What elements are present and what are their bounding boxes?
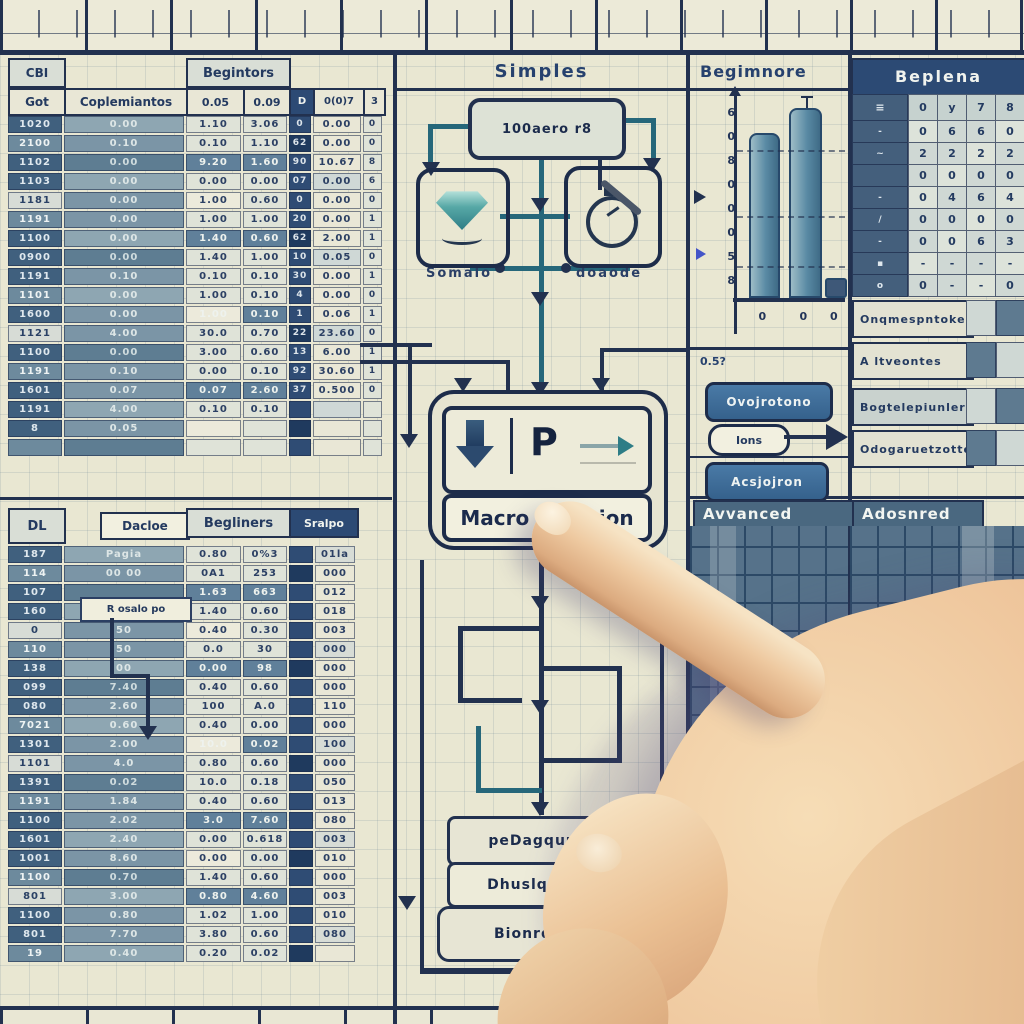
cell[interactable]: 2 <box>937 142 967 165</box>
cell[interactable]: 2.02 <box>64 812 184 829</box>
cell[interactable]: 1.40 <box>186 603 241 620</box>
cell[interactable]: 1 <box>363 306 382 323</box>
cell[interactable]: 1100 <box>8 812 62 829</box>
cell[interactable]: 1191 <box>8 268 62 285</box>
cell[interactable]: 1020 <box>8 116 62 133</box>
cell[interactable] <box>289 420 311 437</box>
mini-header-cell[interactable]: 7 <box>966 94 996 121</box>
table-a-value-header[interactable]: 0.09 <box>243 88 291 116</box>
cell[interactable]: 0 <box>363 382 382 399</box>
cell[interactable]: 23.60 <box>313 325 361 342</box>
mini-header-cell[interactable]: 8 <box>995 94 1024 121</box>
cell[interactable]: 1601 <box>8 831 62 848</box>
mini-header-cell[interactable]: 0 <box>908 94 938 121</box>
cell[interactable] <box>966 430 996 466</box>
cell[interactable]: 7.40 <box>64 679 184 696</box>
cell[interactable]: 98 <box>243 660 287 677</box>
cell[interactable]: 1100 <box>8 907 62 924</box>
cell[interactable]: 4.00 <box>64 401 184 418</box>
cell[interactable]: 0.40 <box>186 622 241 639</box>
cell[interactable]: 1101 <box>8 287 62 304</box>
cell[interactable] <box>289 755 313 772</box>
cell[interactable]: 0.30 <box>243 622 287 639</box>
cell[interactable]: 0.618 <box>243 831 287 848</box>
cell[interactable]: 0.00 <box>186 363 241 380</box>
cell[interactable]: 138 <box>8 660 62 677</box>
cell[interactable]: 1301 <box>8 736 62 753</box>
cell[interactable]: 160 <box>8 603 62 620</box>
cell[interactable]: 000 <box>315 660 355 677</box>
cell[interactable] <box>289 439 311 456</box>
cell[interactable]: 0.00 <box>64 306 184 323</box>
cell[interactable]: 0.40 <box>186 717 241 734</box>
cell[interactable]: 0 <box>966 208 996 231</box>
cell[interactable] <box>289 869 313 886</box>
cell[interactable]: - <box>937 274 967 297</box>
mini-table-corner[interactable]: ≡ <box>852 94 908 121</box>
mini-header-cell[interactable]: y <box>937 94 967 121</box>
cell[interactable] <box>966 342 996 378</box>
cell[interactable]: 1.00 <box>186 306 241 323</box>
cell[interactable]: 0.05 <box>313 249 361 266</box>
cell[interactable]: 0 <box>363 116 382 133</box>
cell[interactable]: 0.00 <box>243 173 287 190</box>
cell[interactable]: 8.60 <box>64 850 184 867</box>
cell[interactable]: 2.60 <box>243 382 287 399</box>
cell[interactable]: 013 <box>315 793 355 810</box>
cell[interactable]: 000 <box>315 869 355 886</box>
cell[interactable]: 4 <box>995 186 1024 209</box>
cell[interactable]: 0.00 <box>313 211 361 228</box>
cell[interactable]: 801 <box>8 888 62 905</box>
cell[interactable] <box>289 888 313 905</box>
cell[interactable]: 62 <box>289 135 311 152</box>
cell[interactable]: 010 <box>315 907 355 924</box>
cell[interactable]: 0900 <box>8 249 62 266</box>
cell[interactable]: 1 <box>363 268 382 285</box>
cell[interactable]: 3.00 <box>186 344 241 361</box>
cell[interactable]: - <box>995 252 1024 275</box>
cell[interactable] <box>996 388 1024 424</box>
cell[interactable]: 0 <box>908 164 938 187</box>
cell[interactable]: 1.00 <box>243 249 287 266</box>
cell[interactable]: 0.07 <box>186 382 241 399</box>
cell[interactable]: 8 <box>363 154 382 171</box>
table-b-title[interactable]: DL <box>8 508 66 544</box>
cell[interactable]: 37 <box>289 382 311 399</box>
cell[interactable] <box>289 926 313 943</box>
cell[interactable]: 1103 <box>8 173 62 190</box>
cell[interactable]: 0.18 <box>243 774 287 791</box>
advanced-header-left[interactable]: Avvanced <box>693 500 857 528</box>
cell[interactable] <box>289 401 311 418</box>
cell[interactable]: 0.07 <box>64 382 184 399</box>
cell[interactable]: 0 <box>908 120 938 143</box>
cell[interactable]: 4.00 <box>64 325 184 342</box>
cell[interactable]: 00 00 <box>64 565 184 582</box>
cell[interactable]: 7.60 <box>243 812 287 829</box>
cell[interactable]: 0.60 <box>243 603 287 620</box>
cell[interactable] <box>996 430 1024 466</box>
cell[interactable]: 0.00 <box>64 249 184 266</box>
cell[interactable] <box>289 831 313 848</box>
cell[interactable]: 2 <box>966 142 996 165</box>
cell[interactable]: 1.02 <box>186 907 241 924</box>
macro-icon-box[interactable]: P <box>442 406 652 494</box>
cell[interactable] <box>313 401 361 418</box>
cell[interactable] <box>289 812 313 829</box>
cell[interactable]: 0 <box>995 120 1024 143</box>
cell[interactable]: 0.80 <box>64 907 184 924</box>
cell[interactable]: 0 <box>937 208 967 231</box>
cell[interactable] <box>289 945 313 962</box>
cell[interactable] <box>64 439 184 456</box>
cell[interactable]: 0.10 <box>243 306 287 323</box>
cell[interactable]: 000 <box>315 755 355 772</box>
cell[interactable] <box>313 420 361 437</box>
cell[interactable] <box>289 717 313 734</box>
button-primary[interactable]: Ovojrotono <box>705 382 833 422</box>
cell[interactable]: 1.00 <box>243 907 287 924</box>
cell[interactable]: 0.00 <box>313 268 361 285</box>
cell[interactable]: 20 <box>289 211 311 228</box>
flow-icon-box-left[interactable] <box>416 168 510 268</box>
cell[interactable]: 0.60 <box>64 717 184 734</box>
cell[interactable] <box>315 945 355 962</box>
cell[interactable]: 1601 <box>8 382 62 399</box>
cell[interactable] <box>363 401 382 418</box>
cell[interactable]: 253 <box>243 565 287 582</box>
cell[interactable]: 0 <box>995 274 1024 297</box>
pill-button[interactable]: Ions <box>708 424 790 456</box>
cell[interactable]: 187 <box>8 546 62 563</box>
cell[interactable]: 050 <box>315 774 355 791</box>
cell[interactable]: 0.60 <box>243 192 287 209</box>
cell[interactable]: 6 <box>937 120 967 143</box>
cell[interactable]: 0.02 <box>243 945 287 962</box>
right-row-label[interactable]: Odogaruetzotte <box>852 430 974 468</box>
cell[interactable] <box>289 793 313 810</box>
cell[interactable] <box>289 736 313 753</box>
cell[interactable]: 0.00 <box>64 192 184 209</box>
cell[interactable]: 0.00 <box>64 287 184 304</box>
cell[interactable]: 0.500 <box>313 382 361 399</box>
cell[interactable]: 1191 <box>8 793 62 810</box>
cell[interactable]: 1.00 <box>186 287 241 304</box>
cell[interactable]: 0.0 <box>186 641 241 658</box>
right-panel-header[interactable]: Beplena <box>851 58 1024 96</box>
cell[interactable]: 50 <box>64 641 184 658</box>
cell[interactable]: 6 <box>966 186 996 209</box>
cell[interactable]: 0.80 <box>186 546 241 563</box>
cell[interactable]: 1001 <box>8 850 62 867</box>
cell[interactable]: 100 <box>186 698 241 715</box>
cell[interactable]: - <box>966 274 996 297</box>
cell[interactable]: 10.0 <box>186 736 241 753</box>
cell[interactable]: 92 <box>289 363 311 380</box>
cell[interactable]: 4.0 <box>64 755 184 772</box>
cell[interactable]: 0.00 <box>64 154 184 171</box>
cell[interactable]: 0.60 <box>243 230 287 247</box>
cell[interactable]: 2 <box>908 142 938 165</box>
cell[interactable]: 2.60 <box>64 698 184 715</box>
cell[interactable]: 012 <box>315 584 355 601</box>
cell[interactable] <box>363 420 382 437</box>
cell[interactable]: 0.10 <box>243 268 287 285</box>
cell[interactable]: 0 <box>937 230 967 253</box>
cell[interactable]: - <box>937 252 967 275</box>
table-b-dark-header[interactable]: Sralpo <box>289 508 359 538</box>
cell[interactable]: 30 <box>289 268 311 285</box>
cell[interactable]: 1.60 <box>243 154 287 171</box>
cell[interactable]: 100 <box>315 736 355 753</box>
cell[interactable]: 000 <box>315 641 355 658</box>
cell[interactable]: 0.00 <box>313 135 361 152</box>
cell[interactable]: 30 <box>243 641 287 658</box>
cell[interactable]: 3 <box>995 230 1024 253</box>
cell[interactable]: 1191 <box>8 211 62 228</box>
cell[interactable]: 0.40 <box>186 793 241 810</box>
flow-top-box[interactable]: 100aero r8 <box>468 98 626 160</box>
cell[interactable]: 0.40 <box>64 945 184 962</box>
embedded-flow-note[interactable]: R osalo po <box>80 597 192 622</box>
cell[interactable]: 0.10 <box>186 268 241 285</box>
right-row-label[interactable]: A ltveontes <box>852 342 974 380</box>
cell[interactable]: Pagia <box>64 546 184 563</box>
cell[interactable]: 0.02 <box>243 736 287 753</box>
cell[interactable]: 2.40 <box>64 831 184 848</box>
cell[interactable]: 30.0 <box>186 325 241 342</box>
table-a-extra-header[interactable]: 0(0)7 <box>313 88 365 116</box>
cell[interactable]: 01la <box>315 546 355 563</box>
cell[interactable]: 0.70 <box>64 869 184 886</box>
cell[interactable]: 110 <box>315 698 355 715</box>
cell[interactable]: 080 <box>315 812 355 829</box>
cell[interactable]: 0.60 <box>243 679 287 696</box>
button-secondary[interactable]: Acsjojron <box>705 462 829 502</box>
cell[interactable]: 0.20 <box>186 945 241 962</box>
cell[interactable]: - <box>908 252 938 275</box>
cell[interactable]: 0.00 <box>64 230 184 247</box>
cell[interactable]: 0.10 <box>64 135 184 152</box>
cell[interactable]: 1.40 <box>186 249 241 266</box>
cell[interactable] <box>8 439 62 456</box>
cell[interactable]: 3.06 <box>243 116 287 133</box>
table-a-value-header[interactable]: 0.05 <box>186 88 245 116</box>
cell[interactable]: 1121 <box>8 325 62 342</box>
cell[interactable]: 1191 <box>8 363 62 380</box>
cell[interactable]: 0.00 <box>186 850 241 867</box>
cell[interactable]: 0.00 <box>243 850 287 867</box>
cell[interactable]: 2 <box>995 142 1024 165</box>
cell[interactable]: 0.70 <box>243 325 287 342</box>
table-a-extra-header[interactable]: 3 <box>363 88 386 116</box>
cell[interactable]: 0.00 <box>64 344 184 361</box>
cell[interactable]: 3.00 <box>64 888 184 905</box>
cell[interactable]: 4 <box>289 287 311 304</box>
cell[interactable]: 0.00 <box>186 831 241 848</box>
cell[interactable]: 114 <box>8 565 62 582</box>
cell[interactable] <box>996 300 1024 336</box>
cell[interactable]: 099 <box>8 679 62 696</box>
cell[interactable]: 6 <box>966 120 996 143</box>
cell[interactable]: 003 <box>315 831 355 848</box>
cell[interactable]: 1101 <box>8 755 62 772</box>
cell[interactable]: 1.63 <box>186 584 241 601</box>
cell[interactable]: 0%3 <box>243 546 287 563</box>
cell[interactable]: 1 <box>363 363 382 380</box>
cell[interactable]: 10.0 <box>186 774 241 791</box>
cell[interactable]: 018 <box>315 603 355 620</box>
cell[interactable] <box>243 420 287 437</box>
cell[interactable] <box>313 439 361 456</box>
cell[interactable]: 1 <box>289 306 311 323</box>
cell[interactable]: 080 <box>8 698 62 715</box>
cell[interactable]: 1 <box>363 230 382 247</box>
cell[interactable]: 1100 <box>8 869 62 886</box>
cell[interactable]: 003 <box>315 888 355 905</box>
cell[interactable]: 0.05 <box>64 420 184 437</box>
table-a-extra-header[interactable]: D <box>289 88 315 116</box>
advanced-header-right[interactable]: Adosnred <box>852 500 984 528</box>
cell[interactable]: 2.00 <box>64 736 184 753</box>
cell[interactable]: 010 <box>315 850 355 867</box>
cell[interactable]: 0 <box>995 208 1024 231</box>
cell[interactable]: 6 <box>966 230 996 253</box>
cell[interactable]: 10.67 <box>313 154 361 171</box>
cell[interactable] <box>289 698 313 715</box>
cell[interactable]: 0.00 <box>313 173 361 190</box>
cell[interactable]: 0 <box>363 192 382 209</box>
cell[interactable]: 19 <box>8 945 62 962</box>
cell[interactable] <box>966 388 996 424</box>
cell[interactable]: 110 <box>8 641 62 658</box>
right-row-label[interactable]: Bogtelepiunlero <box>852 388 974 426</box>
table-a-group-header[interactable]: Begintors <box>186 58 291 88</box>
cell[interactable]: 2.00 <box>313 230 361 247</box>
cell[interactable]: 0 <box>289 116 311 133</box>
cell[interactable]: 22 <box>289 325 311 342</box>
cell[interactable]: 7.70 <box>64 926 184 943</box>
cell[interactable]: 0.00 <box>186 173 241 190</box>
cell[interactable]: 3.0 <box>186 812 241 829</box>
cell[interactable]: 0.80 <box>186 888 241 905</box>
cell[interactable]: 0 <box>908 230 938 253</box>
cell[interactable]: 1181 <box>8 192 62 209</box>
cell[interactable]: 1.10 <box>243 135 287 152</box>
cell[interactable]: 50 <box>64 622 184 639</box>
cell[interactable] <box>289 603 313 620</box>
cell[interactable]: 1.00 <box>243 211 287 228</box>
cell[interactable] <box>289 565 313 582</box>
cell[interactable]: 0.02 <box>64 774 184 791</box>
cell[interactable] <box>186 439 241 456</box>
cell[interactable]: 0 <box>966 164 996 187</box>
cell[interactable]: 0.00 <box>243 717 287 734</box>
cell[interactable]: 90 <box>289 154 311 171</box>
flow-icon-box-right[interactable] <box>564 166 662 268</box>
cell[interactable]: 0 <box>995 164 1024 187</box>
cell[interactable]: 107 <box>8 584 62 601</box>
table-b-choice-header[interactable]: Dacloe <box>100 512 190 540</box>
cell[interactable]: 0.00 <box>64 116 184 133</box>
cell[interactable]: 1.84 <box>64 793 184 810</box>
table-a-col2-header[interactable]: Coplemiantos <box>64 88 188 116</box>
cell[interactable]: 1 <box>363 211 382 228</box>
cell[interactable]: A.0 <box>243 698 287 715</box>
cell[interactable]: 13 <box>289 344 311 361</box>
cell[interactable] <box>289 907 313 924</box>
cell[interactable]: 6.00 <box>313 344 361 361</box>
cell[interactable]: 0 <box>363 249 382 266</box>
cell[interactable]: 1102 <box>8 154 62 171</box>
cell[interactable]: 07 <box>289 173 311 190</box>
cell[interactable] <box>289 774 313 791</box>
cell[interactable] <box>289 850 313 867</box>
cell[interactable]: 30.60 <box>313 363 361 380</box>
cell[interactable]: 0.40 <box>186 679 241 696</box>
cell[interactable]: 0.10 <box>243 287 287 304</box>
cell[interactable] <box>363 439 382 456</box>
cell[interactable]: 1.00 <box>186 192 241 209</box>
cell[interactable] <box>289 641 313 658</box>
cell[interactable]: - <box>966 252 996 275</box>
cell[interactable]: 0 <box>363 287 382 304</box>
cell[interactable]: 1100 <box>8 344 62 361</box>
cell[interactable]: 0.00 <box>64 211 184 228</box>
cell[interactable]: 0.10 <box>64 363 184 380</box>
cell[interactable]: 1100 <box>8 230 62 247</box>
cell[interactable] <box>996 342 1024 378</box>
cell[interactable]: 0.60 <box>243 344 287 361</box>
cell[interactable]: 000 <box>315 717 355 734</box>
cell[interactable]: 0.00 <box>313 116 361 133</box>
cell[interactable]: 4 <box>937 186 967 209</box>
cell[interactable]: 9.20 <box>186 154 241 171</box>
cell[interactable]: 62 <box>289 230 311 247</box>
cell[interactable] <box>289 622 313 639</box>
cell[interactable]: 4.60 <box>243 888 287 905</box>
cell[interactable]: 000 <box>315 565 355 582</box>
cell[interactable]: 2100 <box>8 135 62 152</box>
cell[interactable]: 0 <box>363 325 382 342</box>
cell[interactable]: 080 <box>315 926 355 943</box>
cell[interactable] <box>243 439 287 456</box>
cell[interactable]: 0 <box>363 135 382 152</box>
cell[interactable]: 7021 <box>8 717 62 734</box>
cell[interactable]: 0 <box>908 186 938 209</box>
cell[interactable]: 0.10 <box>186 401 241 418</box>
cell[interactable]: 1.40 <box>186 869 241 886</box>
cell[interactable]: 0 <box>937 164 967 187</box>
cell[interactable]: 0 <box>908 208 938 231</box>
right-row-label[interactable]: Onqmespntokes <box>852 300 974 338</box>
cell[interactable]: 1191 <box>8 401 62 418</box>
cell[interactable]: 3.80 <box>186 926 241 943</box>
cell[interactable] <box>289 546 313 563</box>
cell[interactable]: 1.40 <box>186 230 241 247</box>
cell[interactable]: 1600 <box>8 306 62 323</box>
cell[interactable]: 0.60 <box>243 793 287 810</box>
cell[interactable] <box>966 300 996 336</box>
cell[interactable] <box>289 679 313 696</box>
cell[interactable]: 6 <box>363 173 382 190</box>
cell[interactable] <box>289 584 313 601</box>
table-a-title[interactable]: CBI <box>8 58 66 88</box>
cell[interactable]: 000 <box>315 679 355 696</box>
cell[interactable]: 0.10 <box>186 135 241 152</box>
cell[interactable]: 10 <box>289 249 311 266</box>
